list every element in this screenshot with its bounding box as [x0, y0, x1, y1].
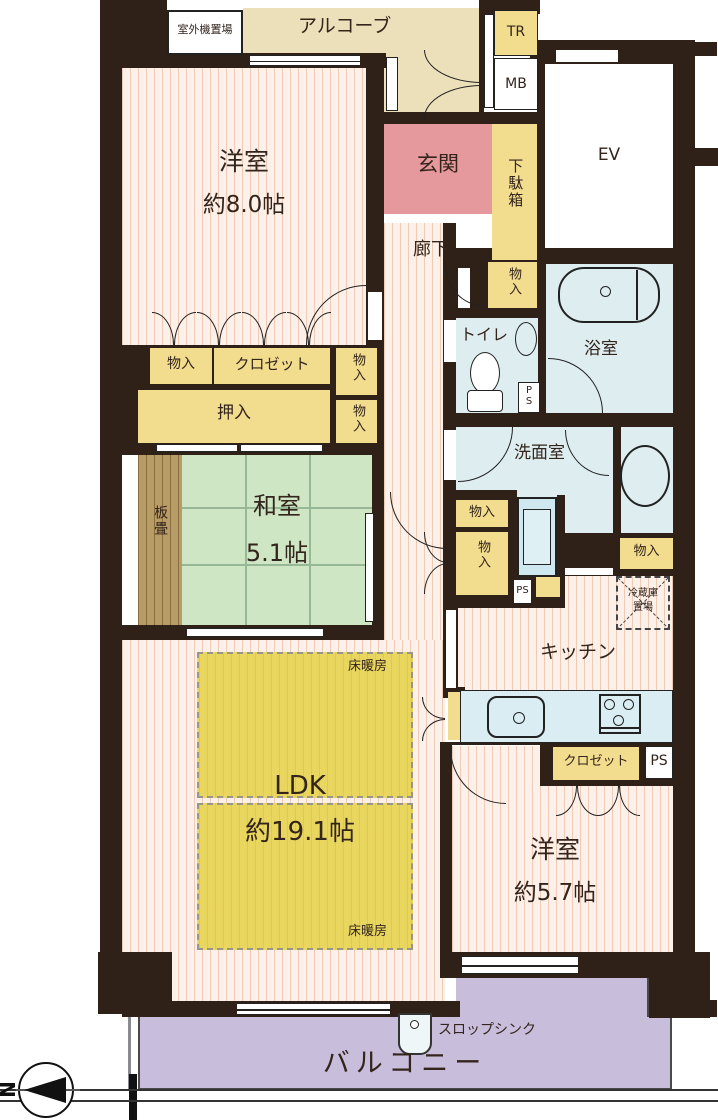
stove-base — [600, 727, 640, 729]
storage-label: 物入 — [150, 356, 212, 372]
sliding-door — [240, 444, 323, 452]
window — [250, 55, 360, 66]
pipe-space-label: PS — [645, 753, 673, 769]
sliding-door — [365, 513, 374, 622]
wall — [557, 495, 565, 580]
storage-box — [536, 577, 560, 597]
wall — [693, 148, 718, 166]
wall — [122, 0, 167, 55]
hallway-label: 廊下 — [400, 240, 462, 261]
north-label: N — [0, 1081, 20, 1098]
threshold — [565, 568, 613, 575]
storage-label: 物入 — [474, 540, 489, 570]
wall — [443, 413, 673, 427]
ldk-label: LDK — [255, 772, 345, 802]
storage-label: 物入 — [349, 404, 364, 434]
storage-label: 物入 — [456, 506, 508, 521]
kitchen-label: キッチン — [528, 642, 628, 664]
door-opening — [444, 430, 456, 480]
toilet-bowl — [470, 352, 500, 394]
boundary-mark — [129, 1074, 137, 1120]
wall — [695, 1000, 717, 1017]
fridge-space-label-2: 置場 — [616, 602, 670, 614]
kitchen-faucet — [513, 712, 525, 724]
stove-burner — [604, 699, 615, 710]
closet-label: クロゼット — [214, 356, 330, 373]
railing-line — [0, 1100, 718, 1102]
washroom-label: 洗面室 — [514, 444, 565, 464]
pipe-space-label: PS — [523, 385, 535, 407]
shoe-box-label: 下駄箱 — [506, 158, 523, 209]
sliding-door — [156, 444, 238, 452]
toilet-hand-basin — [515, 322, 537, 356]
storage-label: 物入 — [505, 267, 520, 297]
closet-label: クロゼット — [553, 755, 639, 770]
genkan-step — [384, 214, 492, 223]
alcove-label: アルコーブ — [298, 16, 391, 38]
door-opening — [368, 292, 382, 340]
floor-heating-label: 床暖房 — [348, 660, 387, 675]
western-room-b-label: 洋室 — [505, 836, 605, 865]
wall — [440, 742, 452, 965]
stove-burner — [613, 715, 624, 726]
toilet-label: トイレ — [460, 326, 508, 344]
japanese-room-label: 和室 — [227, 493, 327, 521]
floor-heating-label: 床暖房 — [348, 925, 387, 940]
door-opening — [444, 320, 456, 362]
fridge-space-label-1: 冷蔵庫 — [616, 588, 670, 600]
stove-burner — [623, 699, 634, 710]
meter-box-label: MB — [494, 76, 538, 92]
oshiire-label: 押入 — [138, 404, 330, 424]
sliding-door — [186, 628, 324, 637]
tatami-grid — [309, 452, 311, 625]
balcony-window-western-b — [462, 956, 578, 974]
door-panel — [484, 14, 494, 108]
bathroom-label: 浴室 — [584, 340, 618, 360]
storage-label: 物入 — [620, 545, 673, 560]
western-room-a-size: 約8.0帖 — [184, 192, 304, 218]
elevator-label: EV — [545, 146, 673, 166]
entrance-door-panel — [386, 57, 398, 111]
wall — [673, 40, 695, 958]
trunk-room-label: TR — [494, 24, 538, 40]
door-opening — [446, 610, 456, 688]
storage-label: 物入 — [349, 353, 364, 383]
slop-sink-label: スロップシンク — [438, 1022, 536, 1038]
pipe-space-label: PS — [513, 585, 532, 597]
western-room-b-size: 約5.7帖 — [495, 880, 615, 906]
wall — [443, 248, 673, 264]
balcony-window-ldk — [237, 1003, 390, 1015]
bathtub-divider — [636, 270, 638, 320]
japanese-room-size: 5.1帖 — [217, 540, 337, 568]
bathtub-drain — [600, 286, 611, 297]
toilet-tank — [467, 390, 503, 412]
balcony-upper — [456, 978, 649, 1018]
elevator-door — [556, 50, 618, 62]
railing-line — [0, 1089, 718, 1091]
wall — [537, 40, 545, 264]
wall — [100, 0, 122, 1012]
slop-sink-drain — [410, 1020, 419, 1029]
outdoor-unit-label: 室外機置場 — [167, 24, 243, 37]
ldk-size: 約19.1帖 — [225, 818, 375, 848]
north-arrow — [24, 1077, 66, 1103]
genkan-label: 玄関 — [394, 152, 482, 176]
itatami-strip — [138, 452, 182, 625]
wall — [695, 42, 717, 56]
washing-machine-inner — [523, 509, 551, 565]
balcony-label: バルコニー — [255, 1048, 555, 1079]
washroom-basin — [620, 445, 670, 507]
itatami-label: 板畳 — [152, 505, 168, 537]
floor-plan: 室外機置場 アルコーブ TR MB EV 玄関 下駄箱 廊下 物入 トイレ PS… — [0, 0, 718, 1120]
western-room-a-label: 洋室 — [194, 148, 294, 177]
counter-end — [448, 692, 460, 740]
